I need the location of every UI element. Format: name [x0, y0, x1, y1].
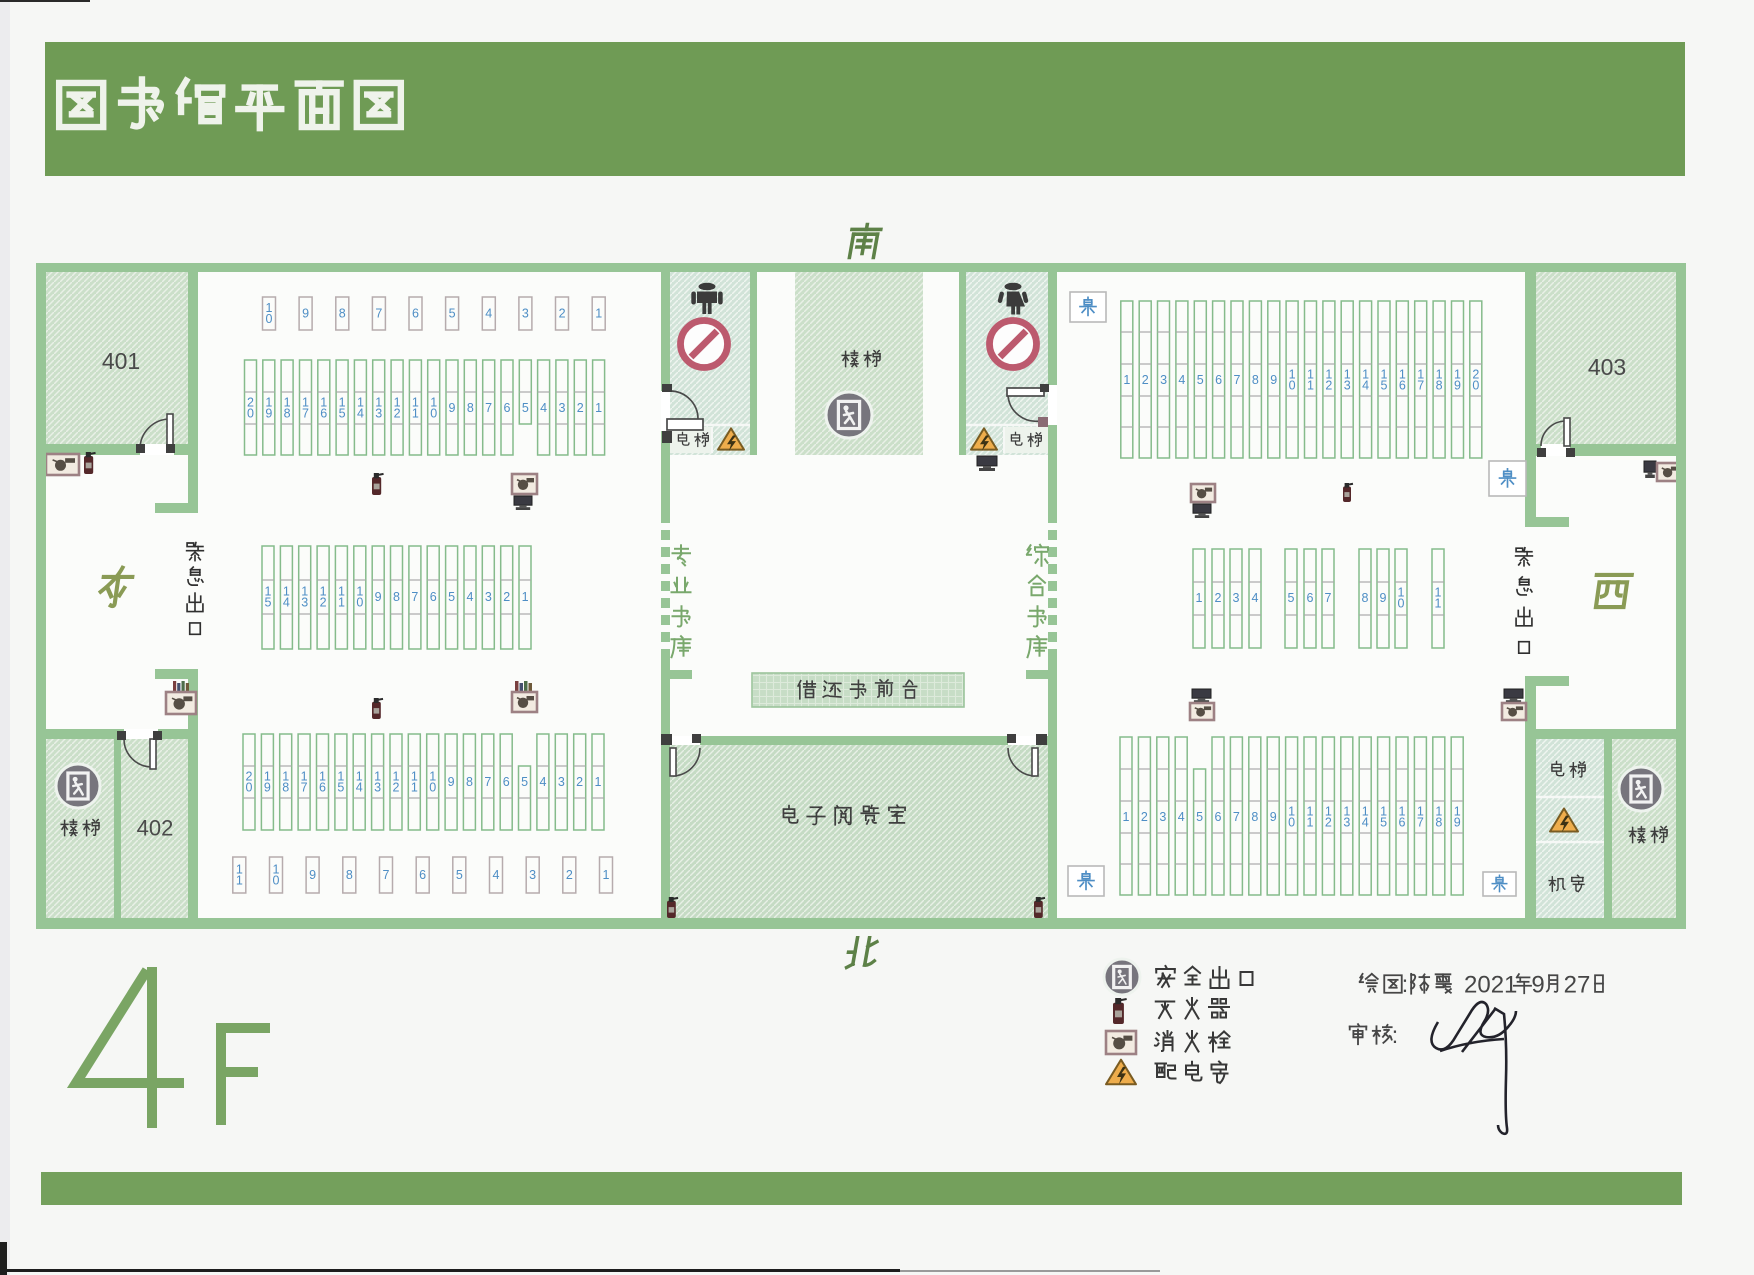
svg-text:4: 4	[356, 781, 363, 795]
svg-text:7: 7	[411, 590, 418, 604]
svg-text:2: 2	[1142, 373, 1149, 387]
svg-text:3: 3	[1344, 379, 1351, 393]
svg-text:1: 1	[1307, 816, 1314, 830]
svg-text:7: 7	[1325, 591, 1332, 605]
svg-text:8: 8	[466, 775, 473, 789]
svg-text:7: 7	[1417, 379, 1424, 393]
svg-text:5: 5	[1197, 373, 1204, 387]
svg-text:6: 6	[1215, 810, 1222, 824]
svg-text:4: 4	[1362, 379, 1369, 393]
svg-text:6: 6	[1399, 816, 1406, 830]
svg-text:0: 0	[266, 312, 273, 326]
svg-text:2: 2	[1141, 810, 1148, 824]
svg-text:1: 1	[411, 781, 418, 795]
svg-text:6: 6	[1307, 591, 1314, 605]
svg-text:3: 3	[522, 307, 529, 321]
svg-text:6: 6	[320, 407, 327, 421]
svg-text:2: 2	[1325, 816, 1332, 830]
svg-text:4: 4	[539, 775, 546, 789]
svg-text:4: 4	[357, 407, 364, 421]
svg-text:9: 9	[1454, 379, 1461, 393]
svg-text:6: 6	[503, 775, 510, 789]
svg-text:9: 9	[1531, 972, 1544, 999]
svg-text:4: 4	[540, 401, 547, 415]
svg-text:5: 5	[265, 596, 272, 610]
svg-text:9: 9	[449, 401, 456, 415]
svg-text:3: 3	[1160, 373, 1167, 387]
svg-text:0: 0	[1398, 597, 1405, 611]
svg-text:7: 7	[383, 868, 390, 882]
svg-text:3: 3	[374, 781, 381, 795]
svg-text:7: 7	[484, 775, 491, 789]
svg-text:1: 1	[1435, 597, 1442, 611]
svg-text:2: 2	[559, 307, 566, 321]
svg-text:1: 1	[595, 401, 602, 415]
svg-text:8: 8	[1251, 810, 1258, 824]
svg-text:6: 6	[504, 401, 511, 415]
svg-text:1: 1	[1123, 373, 1130, 387]
svg-text:8: 8	[393, 590, 400, 604]
svg-text:4: 4	[493, 868, 500, 882]
svg-text:3: 3	[558, 401, 565, 415]
svg-text:4: 4	[1362, 816, 1369, 830]
svg-text:5: 5	[522, 401, 529, 415]
svg-text:7: 7	[301, 781, 308, 795]
svg-text:3: 3	[485, 590, 492, 604]
svg-text:8: 8	[282, 781, 289, 795]
svg-text:401: 401	[102, 348, 140, 374]
svg-text:1: 1	[412, 407, 419, 421]
svg-text:0: 0	[356, 596, 363, 610]
svg-text:3: 3	[375, 407, 382, 421]
svg-text:9: 9	[265, 407, 272, 421]
svg-text:5: 5	[337, 781, 344, 795]
svg-text:1: 1	[236, 874, 243, 888]
svg-text:5: 5	[1381, 379, 1388, 393]
svg-text:5: 5	[521, 775, 528, 789]
svg-text:7: 7	[1233, 810, 1240, 824]
svg-text:4: 4	[1252, 591, 1259, 605]
svg-text::: :	[1392, 1022, 1398, 1048]
svg-text:0: 0	[272, 874, 279, 888]
svg-text:0: 0	[430, 407, 437, 421]
svg-text:5: 5	[339, 407, 346, 421]
svg-text:403: 403	[1588, 354, 1626, 380]
svg-text:6: 6	[419, 868, 426, 882]
svg-text:3: 3	[529, 868, 536, 882]
svg-text:7: 7	[1234, 373, 1241, 387]
svg-text:8: 8	[1252, 373, 1259, 387]
svg-text:8: 8	[1436, 379, 1443, 393]
svg-text:3: 3	[301, 596, 308, 610]
svg-text:9: 9	[309, 868, 316, 882]
svg-text:0: 0	[247, 407, 254, 421]
svg-text:9: 9	[1380, 591, 1387, 605]
svg-text:2: 2	[577, 401, 584, 415]
svg-text:8: 8	[1435, 816, 1442, 830]
svg-text:2: 2	[392, 781, 399, 795]
svg-text:4: 4	[466, 590, 473, 604]
svg-text:1: 1	[1307, 379, 1314, 393]
svg-text:7: 7	[302, 407, 309, 421]
svg-text:6: 6	[1399, 379, 1406, 393]
svg-text:0: 0	[1288, 816, 1295, 830]
svg-text:2: 2	[394, 407, 401, 421]
svg-text:6: 6	[430, 590, 437, 604]
svg-text:7: 7	[1417, 816, 1424, 830]
svg-text:9: 9	[302, 307, 309, 321]
svg-text:1: 1	[603, 868, 610, 882]
svg-text:5: 5	[1196, 810, 1203, 824]
svg-text:9: 9	[375, 590, 382, 604]
svg-text:5: 5	[1380, 816, 1387, 830]
svg-text:8: 8	[339, 307, 346, 321]
svg-text:6: 6	[319, 781, 326, 795]
svg-text:3: 3	[1233, 591, 1240, 605]
svg-text:5: 5	[1288, 591, 1295, 605]
svg-text:8: 8	[1362, 591, 1369, 605]
svg-text:2: 2	[320, 596, 327, 610]
svg-text:3: 3	[1343, 816, 1350, 830]
svg-text:0: 0	[1289, 379, 1296, 393]
svg-text::: :	[1402, 971, 1408, 997]
svg-text:1: 1	[338, 596, 345, 610]
svg-text:8: 8	[284, 407, 291, 421]
svg-text:5: 5	[448, 590, 455, 604]
svg-text:1: 1	[1123, 810, 1130, 824]
svg-text:9: 9	[1454, 816, 1461, 830]
svg-text:1: 1	[522, 590, 529, 604]
svg-text:7: 7	[485, 401, 492, 415]
svg-text:2: 2	[1325, 379, 1332, 393]
svg-text:6: 6	[412, 307, 419, 321]
svg-text:9: 9	[1270, 373, 1277, 387]
svg-text:8: 8	[467, 401, 474, 415]
svg-text:2: 2	[503, 590, 510, 604]
svg-text:8: 8	[346, 868, 353, 882]
svg-text:2: 2	[1215, 591, 1222, 605]
svg-text:2: 2	[566, 868, 573, 882]
svg-text:402: 402	[137, 816, 174, 841]
svg-text:6: 6	[1215, 373, 1222, 387]
svg-text:9: 9	[264, 781, 271, 795]
svg-text:4: 4	[485, 307, 492, 321]
svg-text:1: 1	[595, 775, 602, 789]
svg-text:9: 9	[1270, 810, 1277, 824]
svg-text:4: 4	[1178, 810, 1185, 824]
svg-text:5: 5	[449, 307, 456, 321]
svg-text:9: 9	[448, 775, 455, 789]
svg-text:27: 27	[1564, 972, 1591, 999]
svg-text:0: 0	[429, 781, 436, 795]
svg-text:4: 4	[1178, 373, 1185, 387]
svg-text:1: 1	[1196, 591, 1203, 605]
svg-text:3: 3	[558, 775, 565, 789]
svg-text:4: 4	[283, 596, 290, 610]
svg-text:0: 0	[1472, 379, 1479, 393]
svg-text:7: 7	[375, 307, 382, 321]
svg-text:5: 5	[456, 868, 463, 882]
svg-text:3: 3	[1159, 810, 1166, 824]
svg-text:2: 2	[576, 775, 583, 789]
svg-text:0: 0	[246, 781, 253, 795]
svg-text:1: 1	[595, 307, 602, 321]
svg-text:2021: 2021	[1464, 972, 1517, 999]
